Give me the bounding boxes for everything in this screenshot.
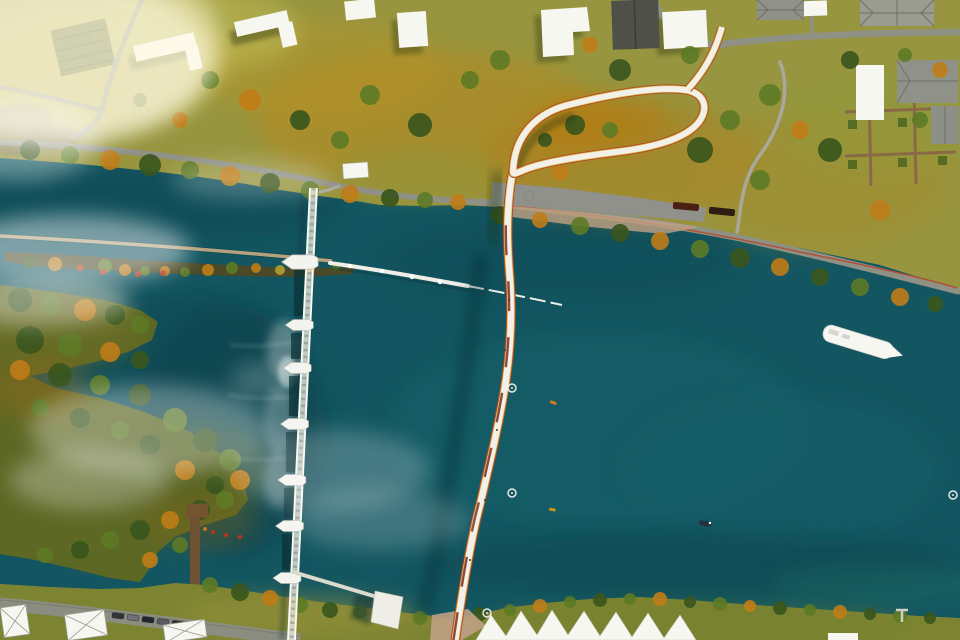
weir-keeper-hut — [343, 162, 369, 179]
aerial-rendering — [0, 0, 960, 640]
scene-root — [0, 0, 960, 640]
shore-building — [828, 633, 858, 640]
